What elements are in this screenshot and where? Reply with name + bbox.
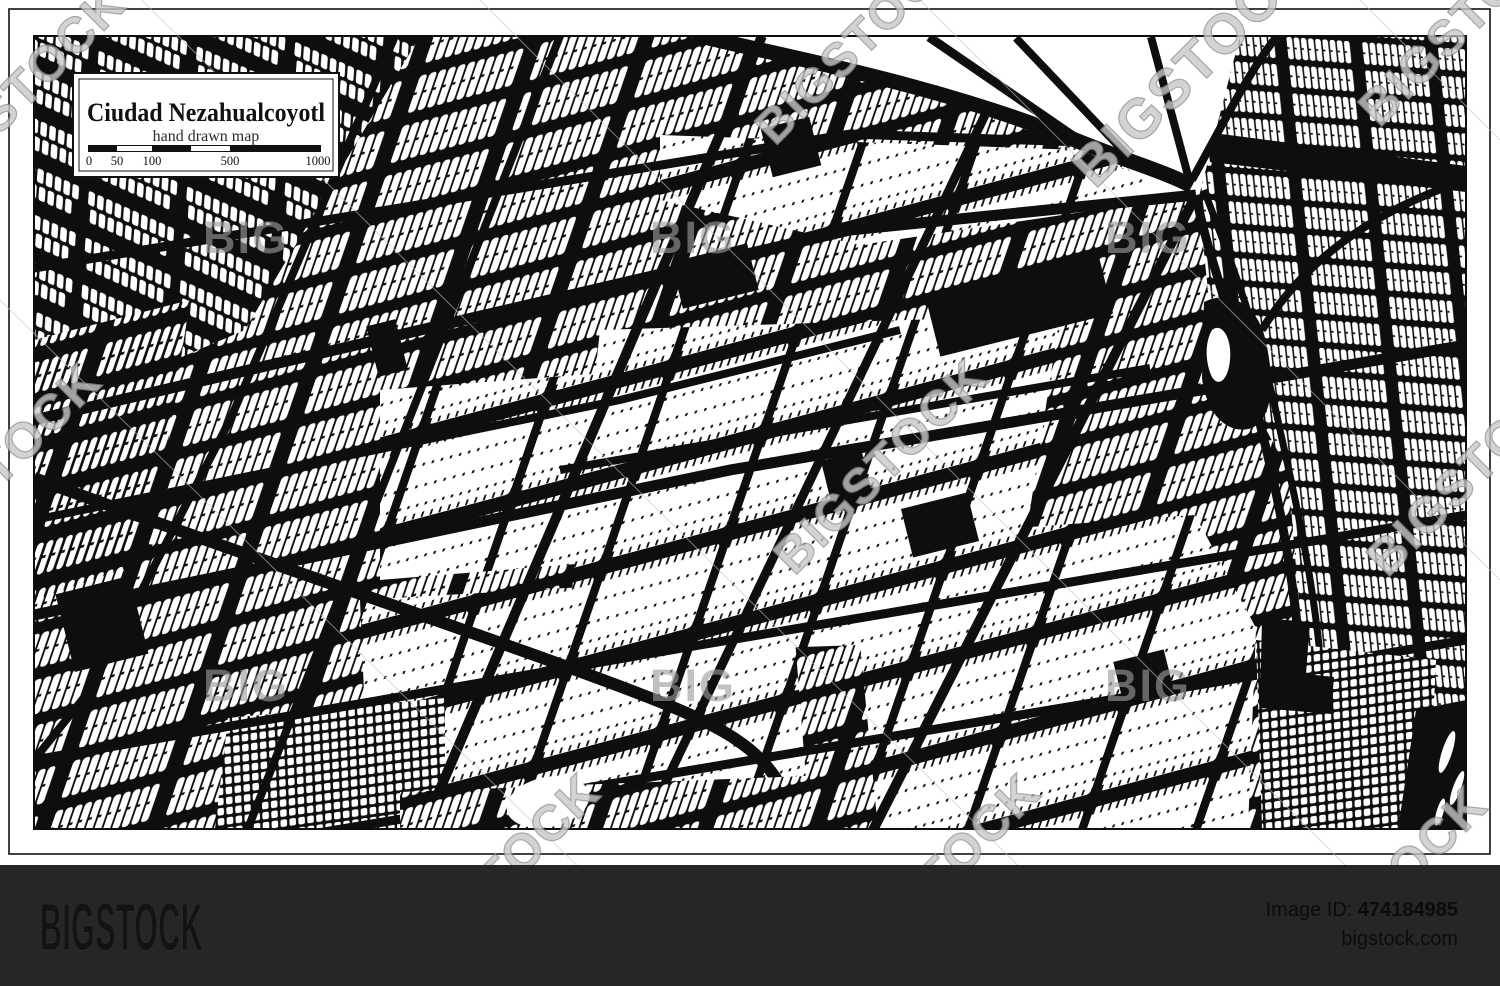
svg-text:1000: 1000 bbox=[306, 154, 331, 168]
svg-text:Ciudad Nezahualcoyotl: Ciudad Nezahualcoyotl bbox=[87, 98, 325, 127]
svg-text:hand drawn map: hand drawn map bbox=[153, 128, 260, 145]
svg-text:BIG: BIG bbox=[650, 660, 736, 711]
svg-text:BIG: BIG bbox=[1105, 212, 1191, 263]
svg-text:BIG: BIG bbox=[203, 660, 289, 711]
svg-text:Image ID: 474184985: Image ID: 474184985 bbox=[1266, 899, 1458, 921]
svg-text:500: 500 bbox=[221, 154, 240, 168]
svg-text:BIGSTOCK: BIGSTOCK bbox=[40, 891, 203, 966]
svg-text:BIG: BIG bbox=[203, 212, 289, 263]
svg-text:bigstock.com: bigstock.com bbox=[1341, 928, 1458, 950]
svg-text:100: 100 bbox=[143, 154, 162, 168]
svg-text:50: 50 bbox=[111, 154, 124, 168]
svg-text:BIG: BIG bbox=[650, 212, 736, 263]
svg-text:0: 0 bbox=[86, 154, 92, 168]
svg-text:BIG: BIG bbox=[1105, 660, 1191, 711]
